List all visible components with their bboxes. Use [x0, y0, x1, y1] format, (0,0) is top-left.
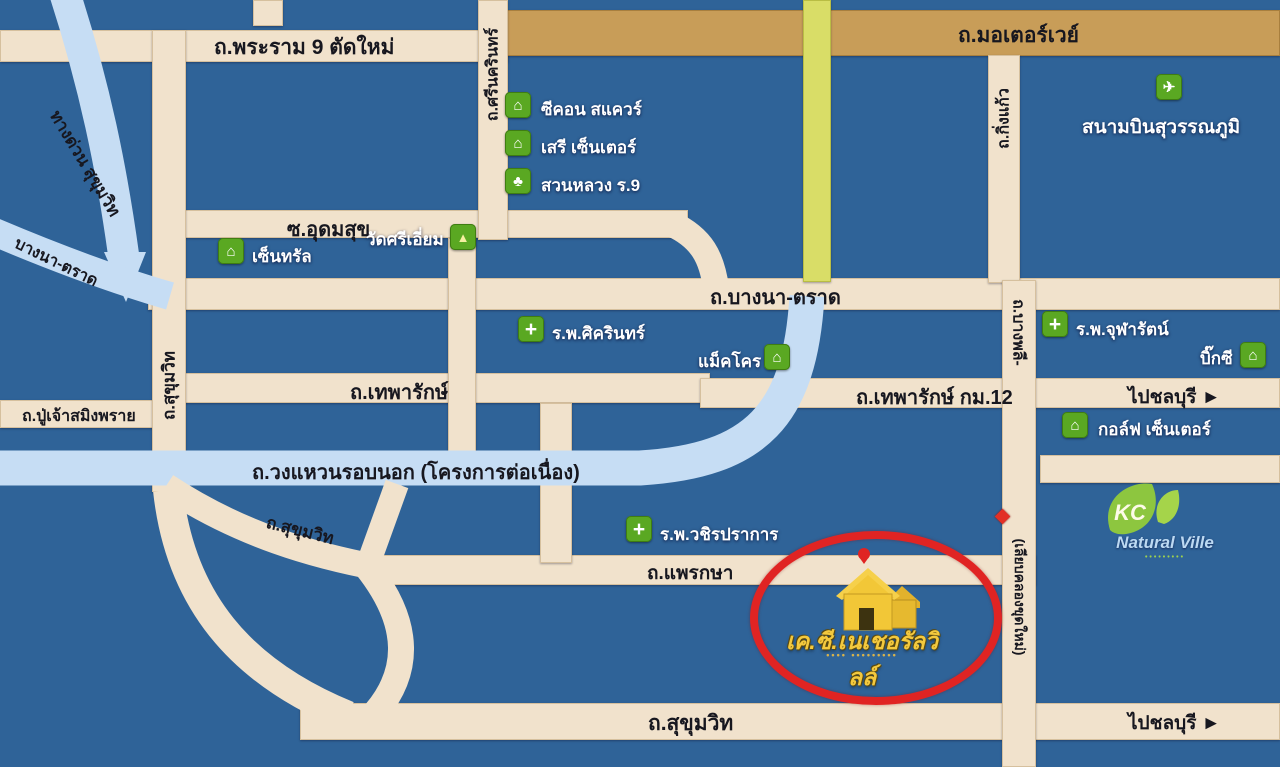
label-sukhumvit-vertical: ถ.สุขุมวิท	[156, 326, 183, 446]
to-chonburi-text: ไปชลบุรี	[1128, 387, 1196, 408]
label-bangphli: ถ.บางพลี-	[1006, 278, 1031, 388]
chularat-hospital-icon: +	[1042, 311, 1068, 337]
suan-luang-park-icon: ♣	[505, 168, 531, 194]
label-theparak: ถ.เทพารักษ์	[350, 376, 448, 408]
big-c-mall-icon: ⌂	[1240, 342, 1266, 368]
label-kingkaeo: ถ.กิ่งแก้ว	[992, 64, 1017, 174]
arrow-right-icon: ►	[1202, 387, 1221, 408]
label-phraeksa: ถ.แพรกษา	[647, 558, 733, 588]
label-to-chonburi-bottom: ไปชลบุรี ►	[1128, 708, 1221, 738]
poi-suan-luang-r9: สวนหลวง ร.9	[541, 172, 640, 199]
poi-big-c: บิ๊กซี	[1200, 345, 1233, 372]
road-leaf-inner-curve	[366, 566, 401, 712]
label-to-chonburi-mid: ไปชลบุรี ►	[1128, 382, 1221, 412]
golf-center-mall-icon: ⌂	[1062, 412, 1088, 438]
temple-icon: ▲	[450, 224, 476, 250]
site-name-script: เค.ซี.เนเชอรัลวิลล์	[782, 624, 942, 696]
label-puchao: ถ.ปู่เจ้าสมิงพราย	[22, 404, 136, 429]
sikarin-hospital-icon: +	[518, 316, 544, 342]
label-bangna: ถ.บางนา-ตราด	[710, 281, 841, 313]
logo-initials: KC	[1114, 500, 1147, 525]
road-udomsuk-bend	[672, 224, 716, 288]
label-ringroad: ถ.วงแหวนรอบนอก (โครงการต่อเนื่อง)	[252, 456, 580, 488]
logo-tagline: •••••••••	[1115, 554, 1215, 561]
label-canal: (เลียบคลองขุดใหม่)	[1008, 512, 1030, 682]
arrow-right-icon: ►	[1202, 713, 1221, 734]
location-pin-icon	[858, 548, 872, 562]
poi-sikarin-hospital: ร.พ.ศิครินทร์	[552, 320, 645, 347]
logo-name: Natural Ville	[1090, 533, 1240, 553]
poi-suvarnabhumi-airport: สนามบินสุวรรณภูมิ	[1082, 112, 1240, 142]
wachiraprakan-hospital-icon: +	[626, 516, 652, 542]
label-sukhumvit-bottom: ถ.สุขุมวิท	[648, 707, 733, 740]
site-name-subtitle: •••• •••••••••	[796, 650, 928, 660]
seacon-square-mall-icon: ⌂	[505, 92, 531, 118]
central-mall-icon: ⌂	[218, 238, 244, 264]
poi-central: เซ็นทรัล	[252, 243, 312, 270]
map-canvas: ถ.พระราม 9 ตัดใหม่ ถ.มอเตอร์เวย์ ซ.อุดมส…	[0, 0, 1280, 767]
to-chonburi-text: ไปชลบุรี	[1128, 713, 1196, 734]
label-rama9: ถ.พระราม 9 ตัดใหม่	[214, 31, 394, 64]
poi-seacon-square: ซีคอน สแควร์	[541, 96, 642, 123]
airport-icon: ✈	[1156, 74, 1182, 100]
house-icon	[836, 568, 924, 632]
label-udomsuk: ซ.อุดมสุข	[287, 213, 370, 245]
road-leaf-diagonal	[366, 484, 397, 570]
kc-natural-ville-logo: KC Natural Ville •••••••••	[1090, 478, 1250, 570]
label-srinakarin: ถ.ศรีนครินทร์	[481, 10, 506, 140]
poi-golf-center: กอล์ฟ เซ็นเตอร์	[1098, 416, 1211, 443]
poi-makro: แม็คโคร	[698, 348, 761, 375]
makro-mall-icon: ⌂	[764, 344, 790, 370]
poi-wat-sri-iam: วัดศรีเอี่ยม	[366, 226, 444, 253]
poi-seri-center: เสรี เซ็นเตอร์	[541, 134, 636, 161]
poi-wachiraprakan-hospital: ร.พ.วชิรปราการ	[660, 521, 778, 548]
poi-chularat-hospital: ร.พ.จุฬารัตน์	[1076, 316, 1169, 343]
label-theparak-km12: ถ.เทพารักษ์ กม.12	[856, 381, 1013, 413]
label-motorway: ถ.มอเตอร์เวย์	[958, 19, 1079, 52]
seri-center-mall-icon: ⌂	[505, 130, 531, 156]
